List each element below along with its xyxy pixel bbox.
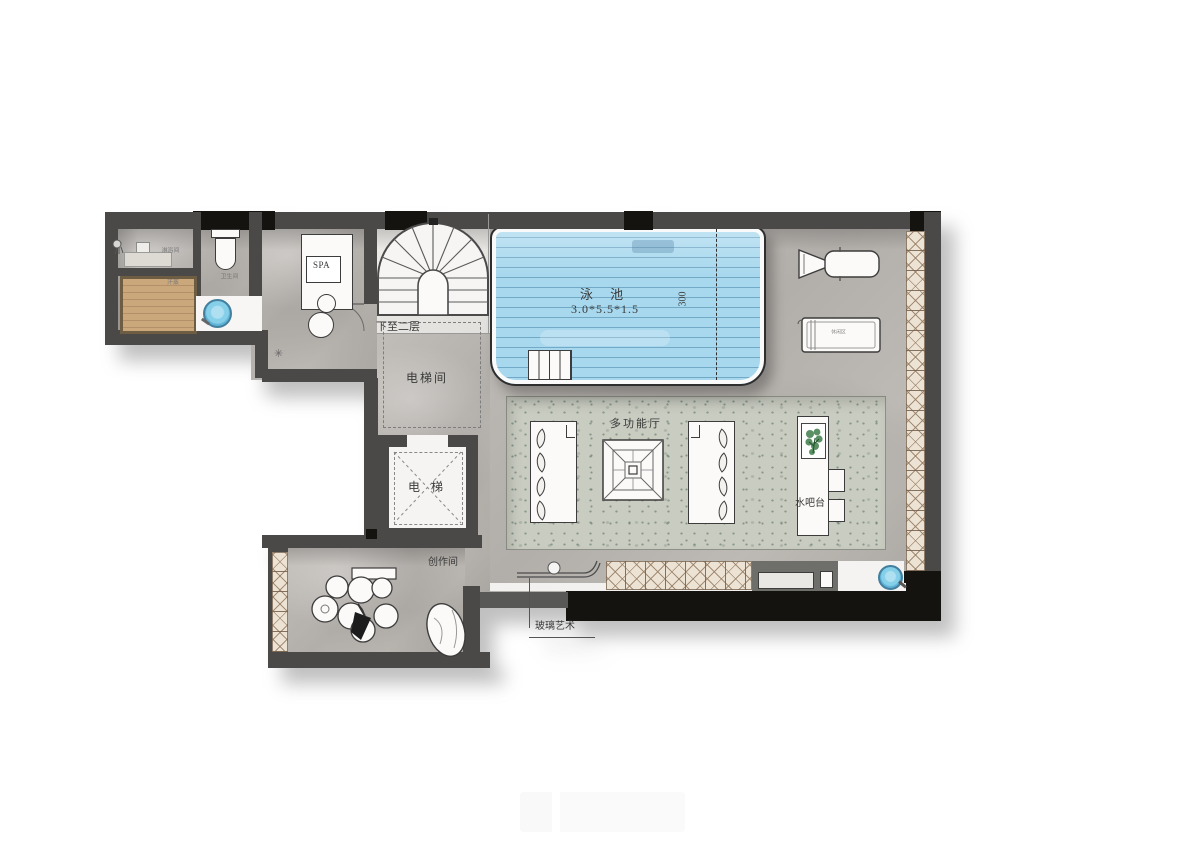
hall-center-table	[602, 439, 664, 501]
watermark	[520, 792, 685, 832]
spiral-staircase	[375, 214, 491, 336]
floor-drain-icon: ✳	[274, 348, 283, 359]
wc-label: 卫生间	[221, 274, 239, 280]
alcove-side-table	[820, 571, 833, 588]
pool-label: 泳 池	[490, 288, 720, 301]
lounge-chair-2	[798, 314, 884, 356]
right-wall-hatch-strip	[906, 231, 925, 573]
partition-bath-horizontal	[118, 268, 197, 276]
spa-stool	[308, 312, 334, 338]
wall-top-black-3	[624, 211, 653, 230]
table-2-cushions	[716, 428, 730, 524]
studio-label: 创作间	[428, 558, 458, 568]
bottom-hatch-strip	[606, 561, 752, 590]
shower-room-label: 淋浴间	[162, 248, 180, 254]
pool-steps	[528, 350, 572, 380]
sauna-wood-floor	[120, 276, 197, 334]
wall-notch-right	[364, 378, 378, 548]
bean-bag-chair	[420, 598, 472, 662]
table-1-cushions	[534, 428, 548, 524]
floor-plan-page: 300 泳 池 3.0*5.5*1.5 下至二层 电梯间 电 梯	[0, 0, 1200, 848]
elevator-door-gap	[407, 435, 448, 447]
floor-plan: 300 泳 池 3.0*5.5*1.5 下至二层 电梯间 电 梯	[0, 0, 1200, 848]
table-2-hook	[691, 425, 700, 438]
lounge-chair-label: 休闲区	[831, 330, 846, 335]
water-bar-label: 水吧台	[795, 499, 825, 509]
pool-water-highlight	[540, 330, 670, 346]
glass-art-label: 玻璃艺术	[535, 622, 575, 632]
table-1-hook	[566, 425, 575, 438]
spa-head-hole	[317, 294, 336, 313]
alcove-bench	[758, 572, 814, 589]
studio-left-hatch-strip	[272, 552, 288, 652]
wall-bottom-black	[566, 588, 941, 621]
spa-label: SPA	[313, 261, 330, 270]
glass-art-underline	[529, 637, 595, 638]
wall-top-black-1	[193, 211, 275, 230]
elevator-cab-label: 电 梯	[389, 481, 466, 493]
drum-set	[305, 560, 410, 652]
pool-water-patch	[632, 240, 674, 253]
spa-towel-graphic: SPA	[306, 256, 341, 283]
toilet-bowl	[215, 238, 236, 270]
pool-dimensions: 3.0*5.5*1.5	[490, 303, 720, 315]
elevator-hall-label: 电梯间	[406, 372, 448, 384]
lounge-chair-1	[796, 247, 882, 281]
glass-art-curve	[514, 558, 606, 584]
wall-right	[924, 212, 941, 600]
bar-stool-2	[828, 499, 845, 522]
wash-basin-blue-2	[878, 565, 903, 590]
toilet-tank	[211, 229, 240, 238]
glass-art-leader-line	[529, 578, 530, 628]
bar-plant	[803, 426, 824, 456]
bar-stool-1	[828, 469, 845, 492]
sauna-label: 汗蒸	[167, 280, 179, 286]
hall-label: 多功能厅	[610, 419, 662, 430]
bath-bench	[124, 252, 172, 267]
wall-corridor-bottom	[262, 369, 377, 382]
wall-left-bath	[105, 212, 118, 345]
